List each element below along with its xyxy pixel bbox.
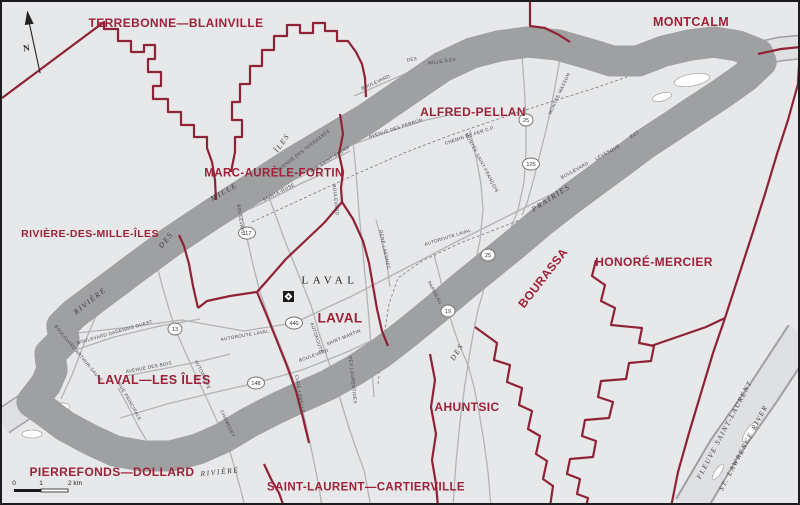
svg-text:19: 19 xyxy=(445,309,451,315)
scale-tick-0: 0 xyxy=(12,480,16,487)
svg-text:13: 13 xyxy=(172,327,178,333)
svg-text:440: 440 xyxy=(289,321,298,327)
highway-shield-148: 148 xyxy=(248,377,265,389)
highway-shield-440: 440 xyxy=(286,317,303,329)
highway-shield-25: 25 xyxy=(519,114,533,126)
municipal-office-symbol xyxy=(283,291,294,302)
svg-text:125: 125 xyxy=(526,162,535,168)
laval-electoral-map: 11713440148192512525 N 0 1 2 km TERREBON… xyxy=(0,0,800,505)
highway-shield-117: 117 xyxy=(239,227,256,239)
map-canvas: 11713440148192512525 N 0 1 2 km xyxy=(2,2,800,505)
svg-text:117: 117 xyxy=(243,231,252,237)
highway-shield-19: 19 xyxy=(441,305,455,317)
svg-text:25: 25 xyxy=(523,118,529,124)
highway-shield-25: 25 xyxy=(481,249,495,261)
highway-shield-13: 13 xyxy=(168,323,182,335)
scale-tick-2: 2 km xyxy=(68,480,82,487)
scale-tick-1: 1 xyxy=(39,480,43,487)
svg-text:148: 148 xyxy=(251,381,260,387)
svg-text:25: 25 xyxy=(485,253,491,259)
highway-shield-125: 125 xyxy=(523,158,540,170)
